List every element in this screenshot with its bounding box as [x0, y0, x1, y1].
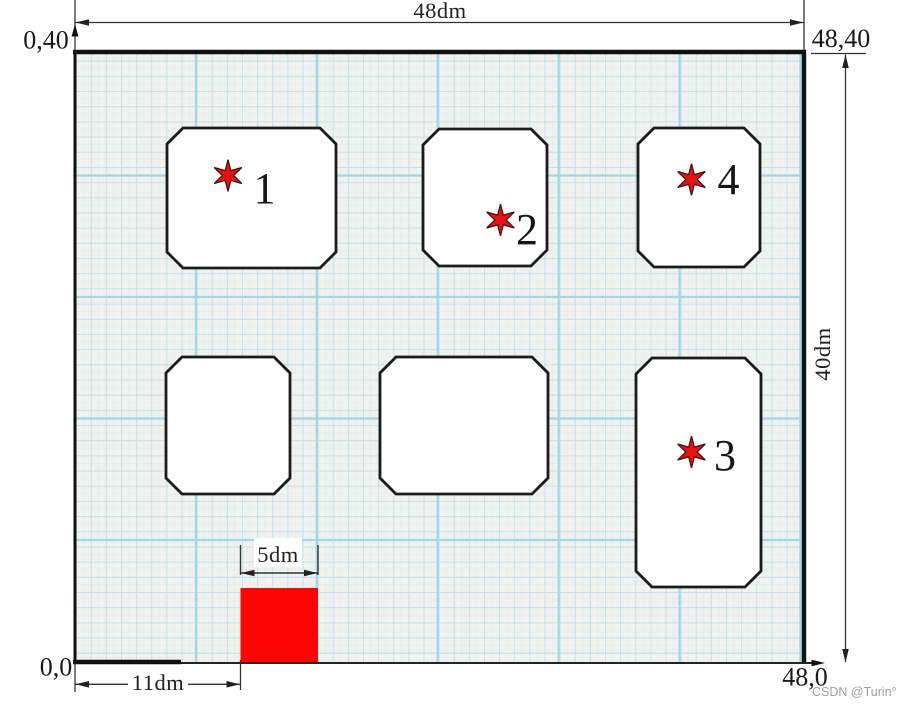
svg-text:5dm: 5dm — [257, 542, 299, 567]
svg-text:0,0: 0,0 — [40, 653, 73, 682]
svg-text:48,40: 48,40 — [812, 24, 871, 53]
svg-text:0,40: 0,40 — [23, 26, 69, 55]
svg-text:3: 3 — [714, 431, 736, 480]
svg-text:40dm: 40dm — [810, 327, 835, 380]
svg-text:2: 2 — [516, 205, 538, 254]
svg-text:4: 4 — [718, 155, 740, 204]
svg-text:11dm: 11dm — [132, 670, 184, 695]
svg-text:1: 1 — [254, 164, 276, 213]
svg-text:48dm: 48dm — [413, 0, 466, 23]
svg-text:CSDN @Turin°: CSDN @Turin° — [812, 685, 897, 699]
